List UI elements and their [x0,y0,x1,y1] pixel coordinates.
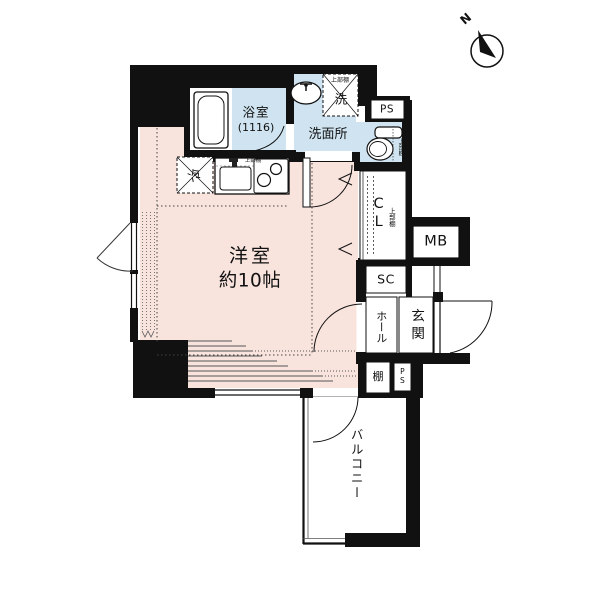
compass [471,30,503,67]
kitchen-shelf-label: 上部棚 [245,159,262,165]
burner-icon [271,164,282,175]
kitchen-faucet-icon [229,158,238,162]
casement-window-swing [97,223,133,271]
hall-label: ホール [375,311,387,344]
balcony-railing [303,398,345,544]
burner-icon [258,174,271,187]
toilet-shelf-label: 上部棚 [397,138,403,156]
closet-label: CL [370,196,385,232]
entrance-door-arc [450,301,492,353]
main-room-label: 洋室 [229,247,273,267]
ps-lower-label: PS [398,367,406,385]
laundry-label: 洗 [335,92,348,105]
ps-upper-label: PS [380,104,394,115]
balcony-label: バルコニー [349,428,362,501]
floor-plan: 浴室 (1116) 洗面所 上部棚 洗 PS 上部棚 上部棚 冷 洋室 約10帖… [0,0,600,599]
bathtub [194,92,228,148]
shoe-closet-label: SC [377,272,395,285]
washroom-door-leaf [303,158,310,207]
bath-size-label: (1116) [238,122,275,134]
floor-plan-drawing [0,0,600,599]
entrance-label: 玄関 [409,309,423,344]
washroom-label: 洗面所 [308,128,347,142]
meter-box-label: MB [424,234,447,249]
shelf-label: 棚 [373,371,384,383]
wash-basin [291,82,321,104]
bath-label: 浴室 [242,105,269,118]
entrance-door [434,266,492,353]
laundry-shelf-label: 上部棚 [331,78,349,84]
kitchen-sink [220,167,251,190]
main-room-size-label: 約10帖 [219,271,282,290]
closet-shelf-label: 上部棚 [388,207,395,227]
